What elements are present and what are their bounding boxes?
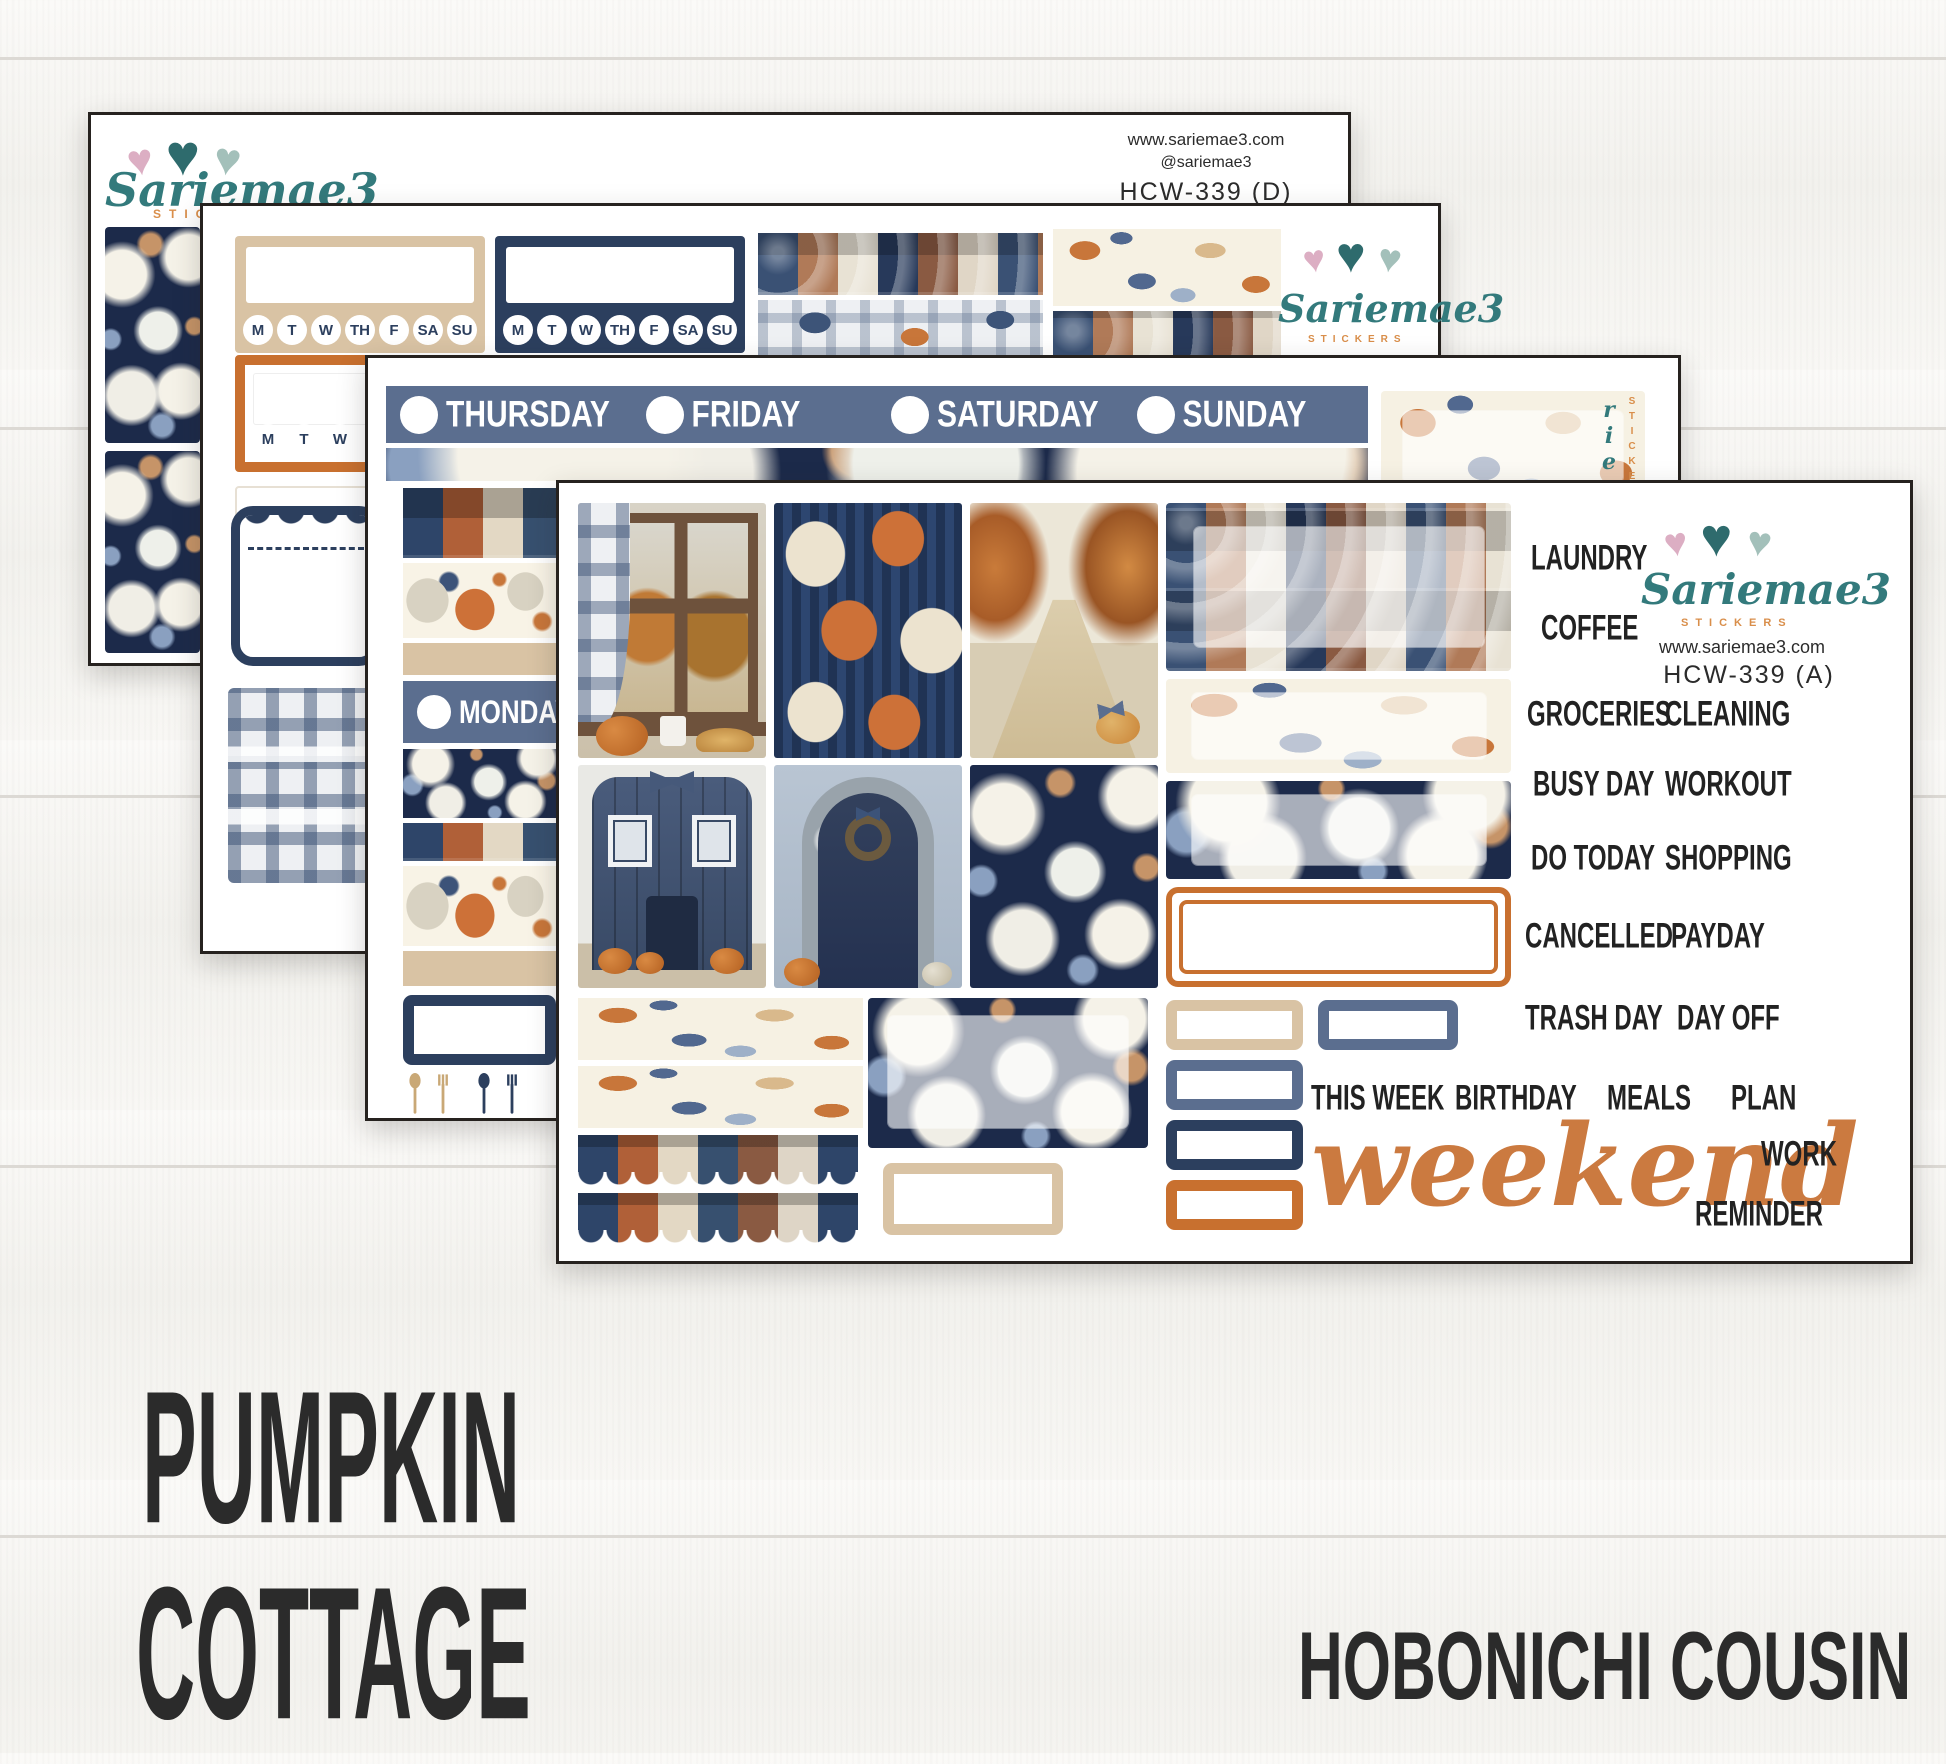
label-box-navy: [403, 995, 556, 1065]
pumpkin-icon: [598, 948, 632, 974]
label-box-slate: [1166, 1060, 1303, 1110]
spoon-icon: [475, 1073, 493, 1115]
brand-logo: Sariemae3: [1278, 286, 1504, 331]
word-sticker: COFFEE: [1541, 609, 1638, 650]
washi-plaid-leaves: [758, 300, 1043, 357]
tracker-day: T: [277, 315, 307, 345]
brand-handle: @sariemae3: [1081, 152, 1331, 174]
sticker-sheet-a: ♥ ♥ ♥ Sariemae3 STICKERS www.sariemae3.c…: [556, 480, 1913, 1264]
habit-tracker-sticker-tan: MTWTHFSASU: [235, 236, 485, 353]
washi-pumpkin-bow: [403, 563, 556, 638]
tracker-day: F: [379, 315, 409, 345]
washi-patchwork-scallop: [578, 1193, 858, 1245]
label-box-orange: [1166, 1180, 1303, 1230]
tracker-day: SU: [707, 315, 737, 345]
brand-hearts-icon: ♥ ♥ ♥: [1303, 230, 1402, 280]
day-circle-icon: [400, 396, 438, 434]
washi-pumpkin-bow: [403, 866, 556, 946]
washi-pillow-patchwork: [758, 233, 1043, 295]
half-box-patchwork: [1166, 503, 1511, 671]
half-box-floral: [1166, 781, 1511, 879]
brand-logo: Sariemae3: [1641, 565, 1891, 614]
tracker-day: TH: [605, 315, 635, 345]
pumpkin-icon: [922, 962, 952, 986]
tracker-day: SU: [447, 315, 477, 345]
planner-type-label: HOBONICHI COUSIN: [1298, 1612, 1911, 1722]
brand-tagline: STICKERS: [1681, 617, 1793, 629]
tracker-day: W: [325, 424, 355, 454]
washi-floral-navy: [403, 749, 556, 818]
weekday-label: FRIDAY: [692, 393, 801, 436]
washi-maple-leaves: [1053, 229, 1281, 306]
weekday-segment: SATURDAY: [877, 396, 1123, 434]
pumpkin-icon: [636, 952, 664, 974]
full-box-floral-sticker: [105, 451, 200, 653]
sheet-d-info: www.sariemae3.com @sariemae3 HCW-339 (D): [1081, 129, 1331, 207]
day-circle-icon: [417, 695, 451, 729]
word-sticker: SHOPPING: [1665, 839, 1792, 880]
tracker-day: W: [311, 315, 341, 345]
washi-tan: [403, 951, 556, 986]
day-circle-icon: [646, 396, 684, 434]
tracker-day: F: [639, 315, 669, 345]
word-sticker: WORK: [1761, 1135, 1837, 1176]
label-box-orange-double: [1166, 887, 1511, 987]
brand-website: www.sariemae3.com: [1627, 635, 1857, 659]
washi-maple-leaves: [578, 1066, 863, 1128]
tracker-day: M: [253, 424, 283, 454]
tracker-day: T: [289, 424, 319, 454]
full-box-barn-scene: [578, 765, 766, 988]
tracker-day: M: [503, 315, 533, 345]
label-box-tan: [1166, 1000, 1303, 1050]
pumpkin-icon: [710, 948, 744, 974]
half-box-leaves: [1166, 679, 1511, 773]
word-sticker: CANCELLED: [1525, 917, 1673, 958]
weekday-segment: MONDAY: [403, 695, 556, 729]
half-box-floral: [868, 998, 1148, 1148]
word-sticker: DAY OFF: [1677, 999, 1780, 1040]
weekday-segment: FRIDAY: [632, 396, 878, 434]
word-sticker: LAUNDRY: [1531, 539, 1647, 580]
fork-icon: [434, 1073, 452, 1115]
pumpkin-icon: [784, 958, 820, 986]
plaid-blanket-sticker: [228, 688, 378, 883]
word-sticker: WORKOUT: [1665, 765, 1792, 806]
weekday-label: THURSDAY: [446, 393, 610, 436]
pumpkin-icon: [596, 716, 648, 756]
word-sticker: PAYDAY: [1671, 917, 1765, 958]
washi-pillow-patchwork: [1053, 311, 1281, 358]
label-box-tan: [883, 1163, 1063, 1235]
word-sticker: TRASH DAY: [1525, 999, 1663, 1040]
washi-floral-navy: [386, 448, 1368, 481]
wood-plank-line: [0, 57, 1946, 60]
weekday-label: SATURDAY: [937, 393, 1099, 436]
fork-icon: [503, 1073, 521, 1115]
brand-website: www.sariemae3.com: [1081, 129, 1331, 152]
full-box-autumn-path: [970, 503, 1158, 758]
brand-hearts-icon: ♥ ♥ ♥: [1664, 511, 1772, 565]
bow-icon: [650, 771, 694, 793]
word-sticker: GROCERIES: [1527, 695, 1671, 736]
weekday-label: MONDAY: [459, 693, 556, 732]
tracker-day: M: [243, 315, 273, 345]
washi-maple-leaves: [578, 998, 863, 1060]
word-sticker: BUSY DAY: [1533, 765, 1654, 806]
full-box-dahlias: [970, 765, 1158, 988]
kit-title-line1: PUMPKIN: [142, 1352, 520, 1568]
cutlery-stickers: [406, 1073, 566, 1115]
scallop-frame-sticker: [231, 506, 381, 666]
label-box-slate: [1318, 1000, 1458, 1050]
full-box-knit-pumpkins: [774, 503, 962, 758]
kit-title-line2: COTTAGE: [136, 1548, 531, 1764]
weekday-label: SUNDAY: [1183, 393, 1307, 436]
tracker-day: W: [571, 315, 601, 345]
spoon-icon: [406, 1073, 424, 1115]
tracker-day: TH: [345, 315, 375, 345]
weekday-segment: SUNDAY: [1123, 396, 1369, 434]
brand-tagline: STICKERS: [1308, 334, 1407, 345]
washi-patchwork-scallop: [578, 1135, 858, 1187]
sheet-a-sku: HCW-339 (A): [1649, 661, 1849, 690]
tracker-day: SA: [413, 315, 443, 345]
tracker-day: T: [537, 315, 567, 345]
wreath-icon: [845, 815, 891, 861]
washi-patchwork: [403, 488, 556, 558]
washi-tan: [403, 643, 556, 675]
day-circle-icon: [1137, 396, 1175, 434]
label-box-navy: [1166, 1120, 1303, 1170]
full-box-door-scene: [774, 765, 962, 988]
mug-icon: [660, 716, 686, 746]
tracker-day: SA: [673, 315, 703, 345]
monday-strip: MONDAY: [403, 681, 556, 743]
day-circle-icon: [891, 396, 929, 434]
word-sticker: DO TODAY: [1531, 839, 1655, 880]
word-sticker: REMINDER: [1695, 1195, 1823, 1236]
full-box-floral-sticker: [105, 227, 200, 443]
washi-patchwork: [403, 823, 556, 861]
full-box-window-scene: [578, 503, 766, 758]
pie-icon: [696, 728, 754, 752]
weekday-segment: THURSDAY: [386, 396, 632, 434]
word-sticker: CLEANING: [1665, 695, 1790, 736]
weekday-header-strip: THURSDAY FRIDAY SATURDAY SUNDAY: [386, 386, 1368, 443]
habit-tracker-sticker-navy: MTWTHFSASU: [495, 236, 745, 353]
